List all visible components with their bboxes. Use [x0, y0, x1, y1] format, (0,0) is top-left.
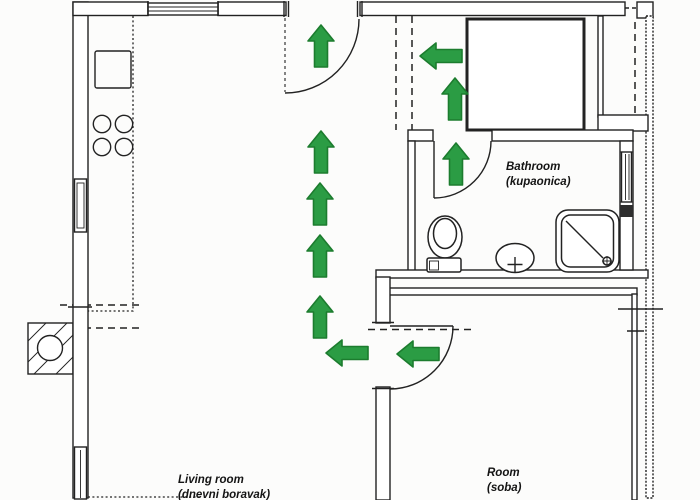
up-arrow-icon — [308, 131, 334, 173]
toilet — [427, 216, 462, 272]
left-arrow-icon — [326, 340, 368, 366]
living-room-label: Living room (dnevni boravak) — [178, 473, 270, 500]
room-label-line1: Room — [487, 466, 522, 481]
room-label: Room (soba) — [487, 466, 522, 495]
window-bathroom — [620, 152, 633, 202]
room-label-line2: (soba) — [487, 481, 522, 496]
living-room-label-line1: Living room — [178, 473, 270, 488]
bathroom-label-line1: Bathroom — [506, 160, 571, 175]
left-arrow-icon — [397, 341, 439, 367]
hall-partition-dashed — [396, 16, 412, 130]
up-arrow-icon — [308, 25, 334, 67]
bathroom-label: Bathroom (kupaonica) — [506, 160, 571, 189]
up-arrow-icon — [443, 143, 469, 185]
floorplan: Living room (dnevni boravak) Bathroom (k… — [0, 0, 700, 500]
up-arrow-icon — [307, 183, 333, 225]
shaft-walls — [598, 16, 648, 131]
window-left-upper — [75, 179, 87, 232]
washbasin — [496, 244, 534, 273]
left-arrow-icon — [420, 43, 462, 69]
shower-cabin — [556, 210, 619, 272]
living-room-label-line2: (dnevni boravak) — [178, 488, 270, 500]
chimney-flue — [28, 323, 73, 374]
stove-burners — [93, 115, 132, 155]
up-arrow-icon — [307, 235, 333, 277]
up-arrow-icon — [442, 78, 468, 120]
closet — [467, 19, 584, 130]
kitchen-sink — [95, 51, 131, 88]
window-top — [148, 1, 218, 16]
floorplan-svg — [0, 0, 700, 500]
window-left-lower — [75, 447, 87, 499]
bathroom-label-line2: (kupaonica) — [506, 175, 571, 190]
up-arrow-icon — [307, 296, 333, 338]
